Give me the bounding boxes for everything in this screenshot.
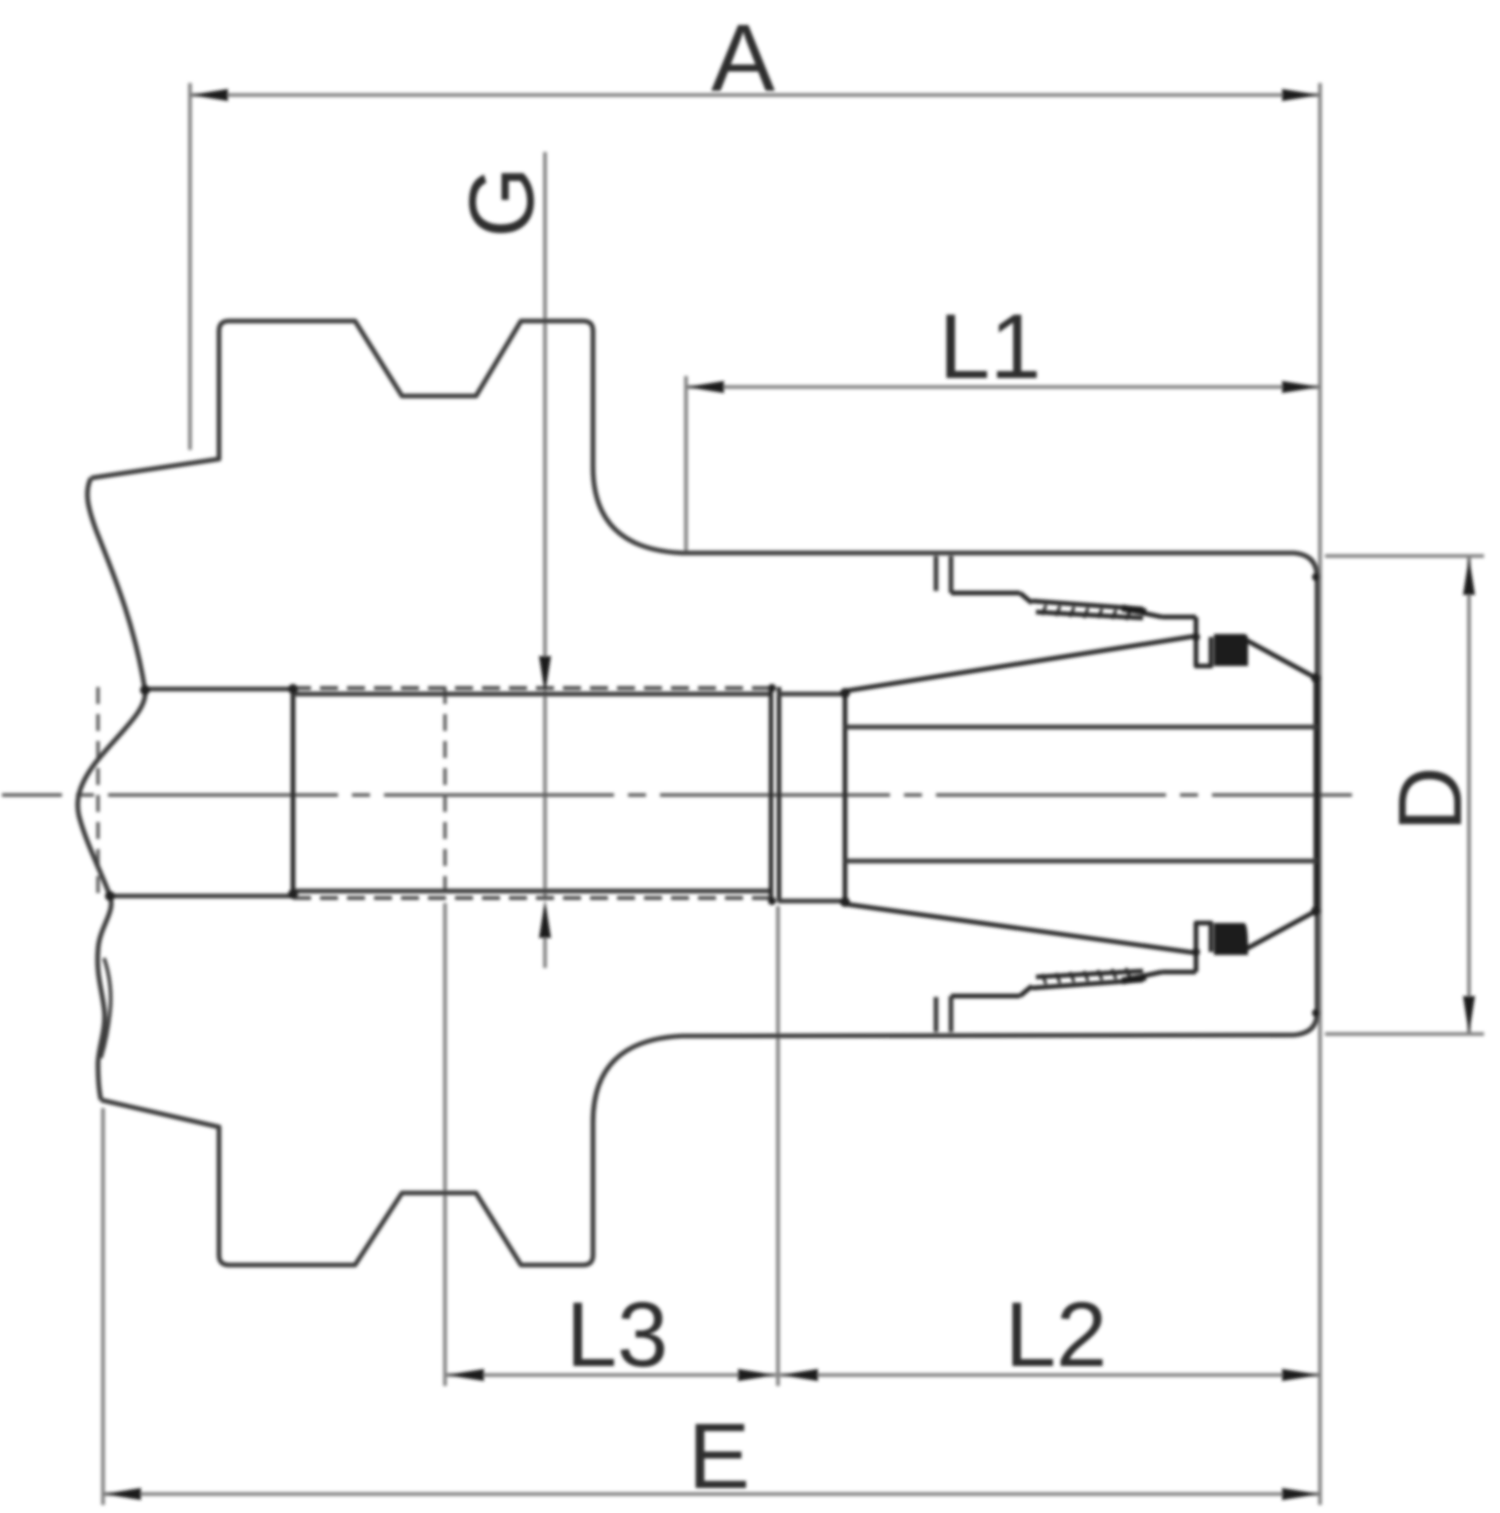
- svg-text:A: A: [711, 5, 775, 112]
- svg-text:E: E: [688, 1404, 750, 1508]
- svg-text:L3: L3: [566, 1284, 668, 1386]
- svg-text:D: D: [1381, 767, 1481, 832]
- svg-text:L1: L1: [939, 296, 1041, 398]
- svg-text:L2: L2: [1005, 1284, 1107, 1386]
- svg-text:G: G: [451, 166, 553, 238]
